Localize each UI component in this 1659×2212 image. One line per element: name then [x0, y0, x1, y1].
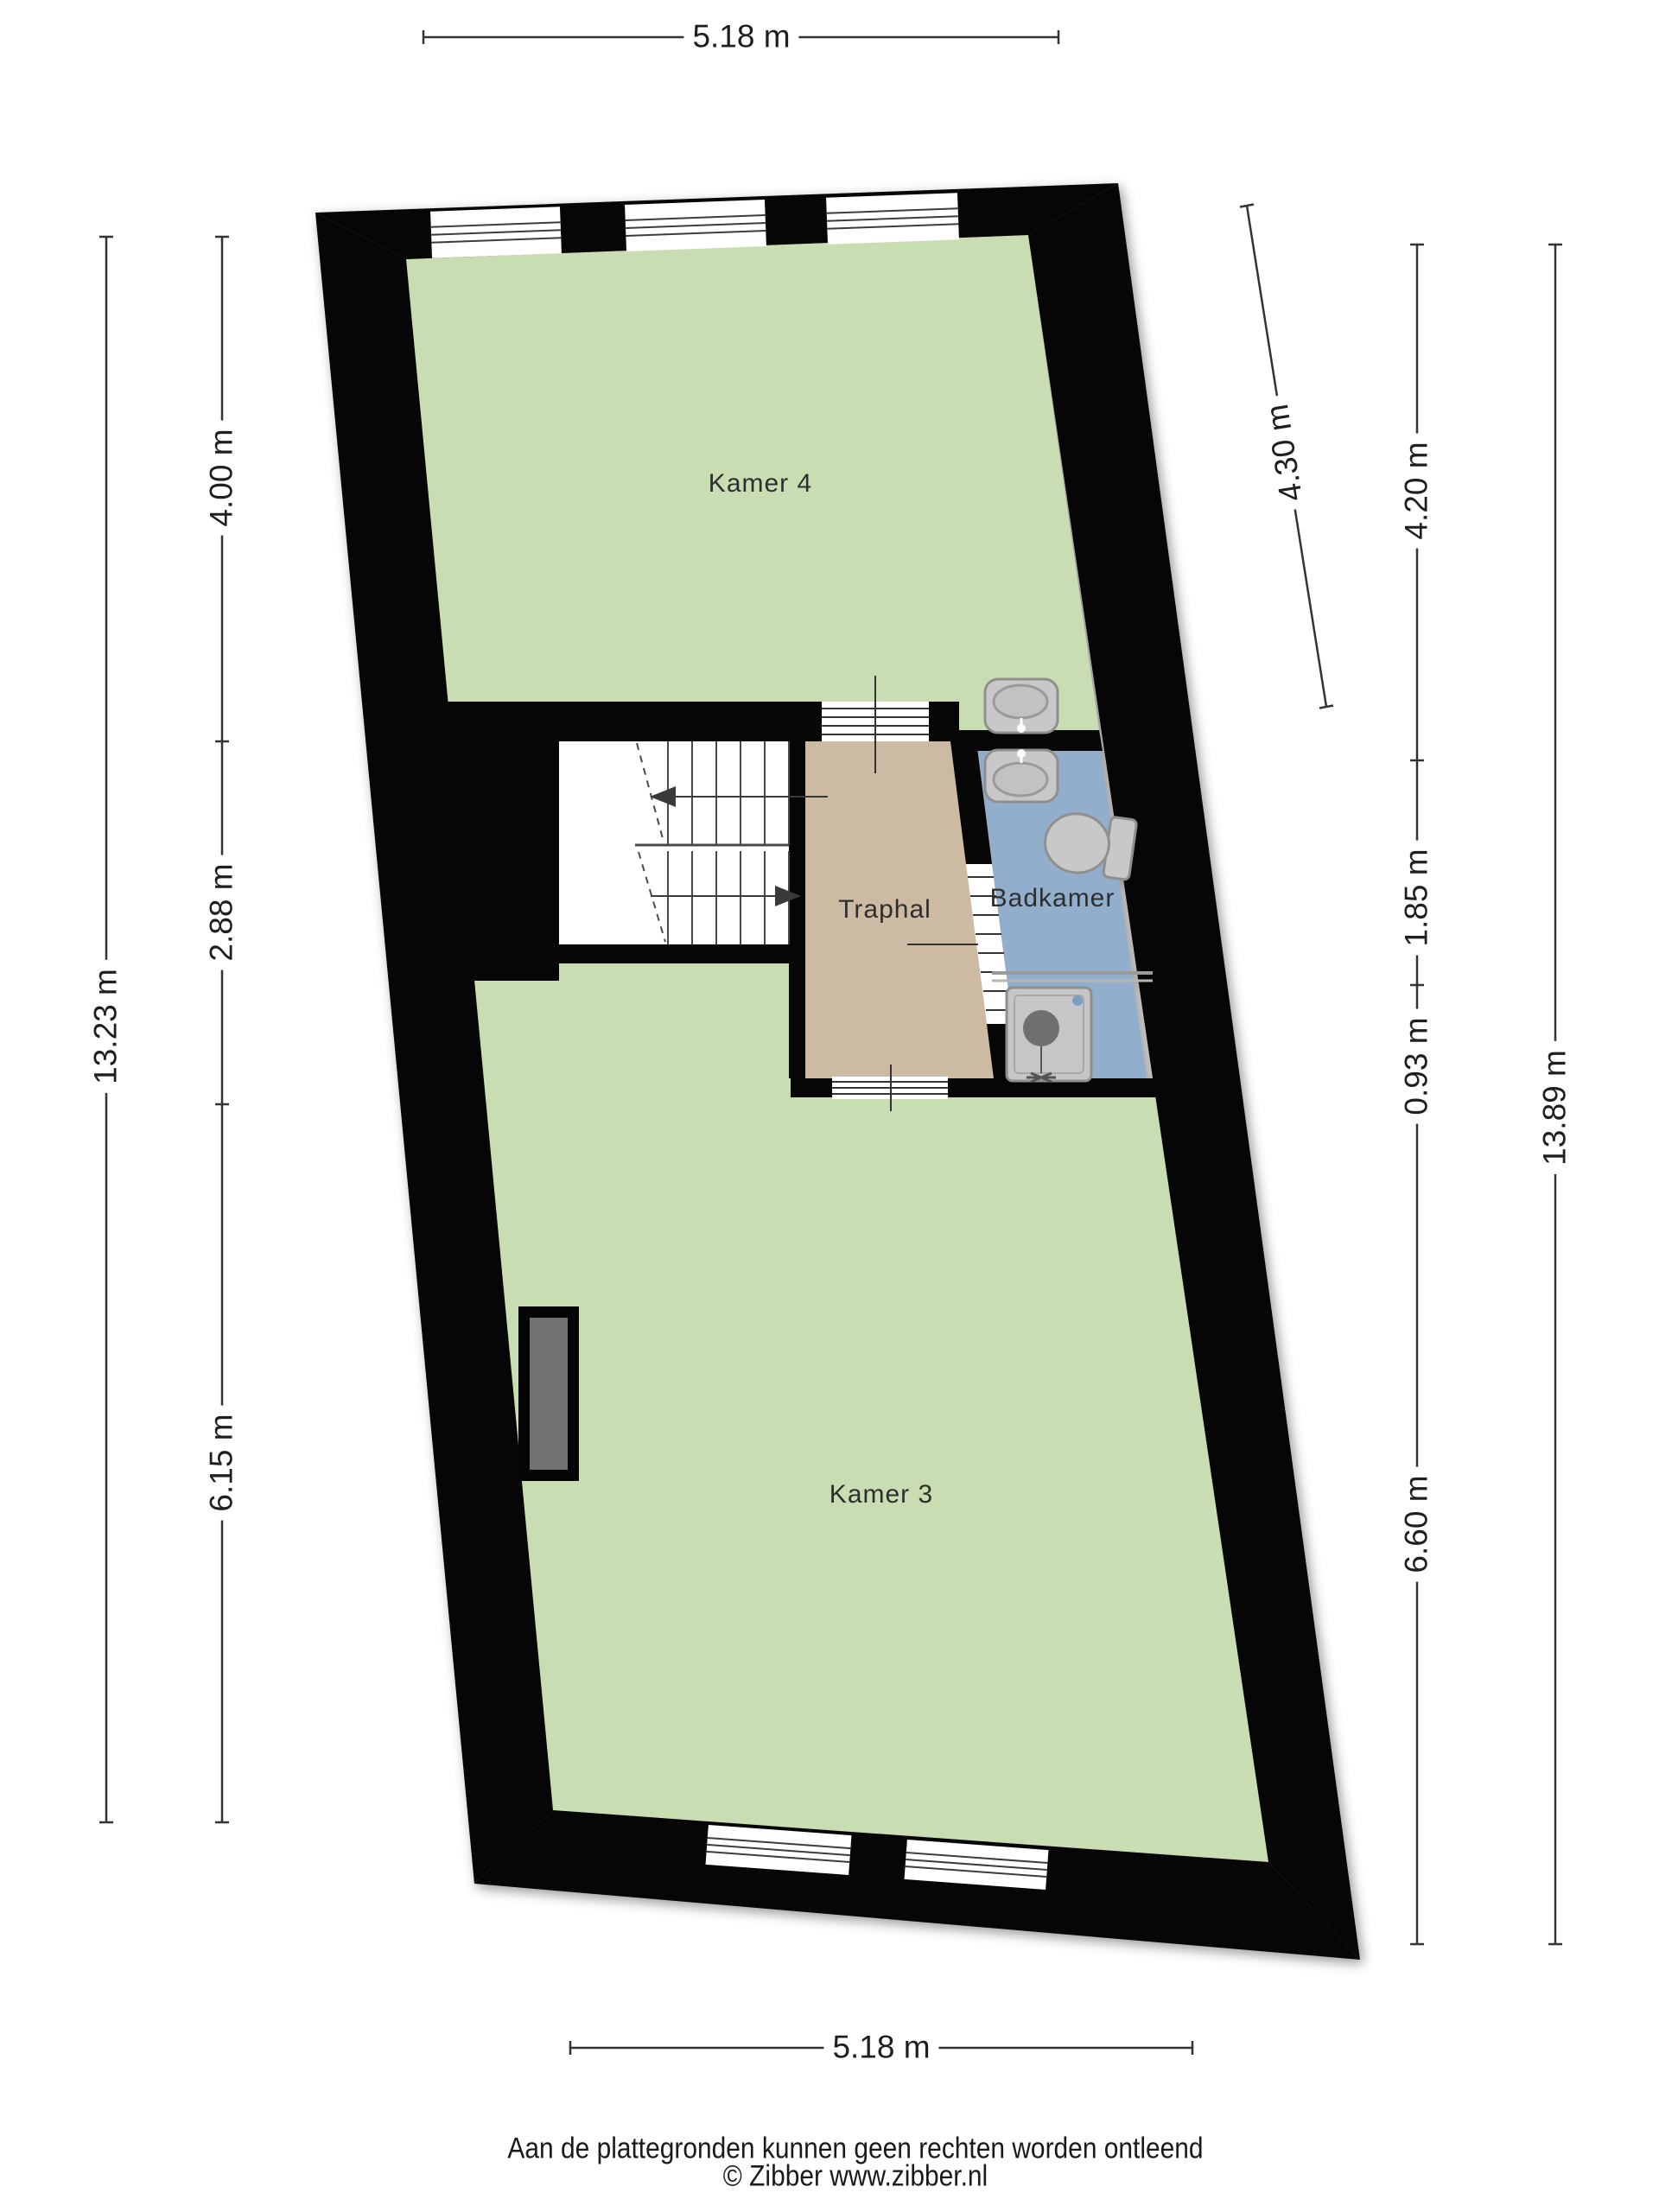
window-icon: [625, 200, 766, 251]
shower-icon: [1007, 988, 1091, 1082]
dim-label-left-inner-3: 6.15 m: [205, 1405, 240, 1520]
room-label-kamer3: Kamer 3: [829, 1480, 933, 1510]
dim-label-right-inner-2: 1.85 m: [1400, 840, 1435, 955]
window-icon: [430, 207, 562, 257]
dim-label-left-outer: 13.23 m: [89, 960, 124, 1093]
room-label-badkamer: Badkamer: [990, 884, 1116, 913]
building: [315, 183, 1360, 1960]
footer-copyright: © Zibber www.zibber.nl: [723, 2160, 988, 2194]
dim-label-right-inner-4: 6.60 m: [1400, 1466, 1435, 1581]
stairwell-floor: [559, 741, 804, 944]
dim-label-right-inner-1: 4.20 m: [1400, 433, 1435, 548]
dim-label-top: 5.18 m: [683, 20, 798, 55]
wall-stairs-bottom: [559, 944, 804, 963]
room-label-traphal: Traphal: [838, 895, 931, 925]
wall-stairs-traphal: [789, 741, 805, 1078]
dim-label-bottom: 5.18 m: [823, 2031, 938, 2066]
wall-kamer4-middle-left: [448, 702, 822, 741]
wall-kamer4-middle-right: [929, 702, 959, 741]
wall-protrusion-bottom-left: [791, 1078, 832, 1097]
window-icon: [826, 193, 959, 245]
wall-stairs-left-mass: [448, 739, 559, 981]
shower-drain-icon: [1023, 1010, 1059, 1046]
sink-badkamer-icon: [985, 749, 1058, 802]
dim-label-right-inner-3: 0.93 m: [1400, 1008, 1435, 1123]
sink-kamer4-icon: [985, 679, 1058, 733]
dim-label-left-inner-2: 2.88 m: [205, 855, 240, 969]
chimney: [518, 1306, 579, 1481]
floorplan-page: Kamer 4 Traphal Badkamer Kamer 3 5.18 m …: [0, 0, 1659, 2212]
dim-label-right-outer: 13.89 m: [1538, 1041, 1573, 1174]
room-label-kamer4: Kamer 4: [709, 469, 812, 499]
dim-label-left-inner-1: 4.00 m: [205, 420, 240, 535]
